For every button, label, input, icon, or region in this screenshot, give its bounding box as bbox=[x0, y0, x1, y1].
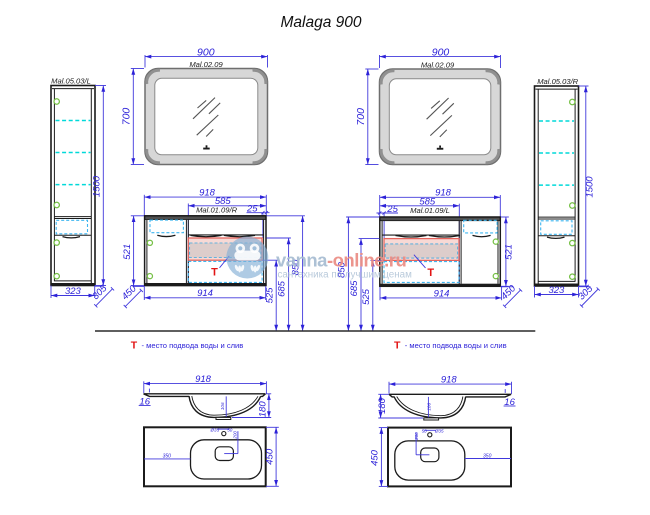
svg-text:16: 16 bbox=[139, 396, 150, 407]
svg-text:1500: 1500 bbox=[91, 175, 102, 197]
svg-text:350: 350 bbox=[483, 453, 492, 459]
svg-text:Mal.02.09: Mal.02.09 bbox=[189, 60, 223, 69]
svg-text:525: 525 bbox=[264, 287, 275, 304]
svg-text:Mal.01.09/R: Mal.01.09/R bbox=[196, 205, 237, 214]
svg-text:918: 918 bbox=[199, 187, 216, 198]
svg-text:- место подвода воды и слив: - место подвода воды и слив bbox=[405, 341, 507, 350]
svg-text:Mal.05.03/R: Mal.05.03/R bbox=[537, 77, 578, 86]
svg-text:900: 900 bbox=[432, 47, 450, 59]
svg-text:450: 450 bbox=[264, 448, 275, 465]
svg-text:521: 521 bbox=[503, 244, 514, 260]
svg-text:450: 450 bbox=[499, 283, 518, 302]
svg-text:525: 525 bbox=[361, 288, 372, 305]
svg-text:918: 918 bbox=[435, 188, 452, 199]
svg-text:25: 25 bbox=[386, 204, 398, 215]
svg-text:Ø35: Ø35 bbox=[434, 429, 444, 434]
svg-text:сантехника по лучшим ценам: сантехника по лучшим ценам bbox=[278, 270, 413, 281]
svg-text:16: 16 bbox=[504, 397, 515, 408]
svg-text:180: 180 bbox=[377, 397, 388, 414]
svg-text:914: 914 bbox=[434, 288, 450, 299]
svg-text:914: 914 bbox=[197, 288, 213, 299]
svg-text:685: 685 bbox=[277, 280, 288, 297]
svg-text:106: 106 bbox=[220, 402, 225, 410]
svg-text:50: 50 bbox=[422, 429, 428, 434]
svg-text:918: 918 bbox=[441, 374, 458, 385]
svg-text:323: 323 bbox=[65, 286, 82, 297]
svg-text:450: 450 bbox=[370, 449, 381, 466]
svg-text:25: 25 bbox=[246, 204, 258, 215]
svg-text:918: 918 bbox=[195, 374, 212, 385]
svg-text:106: 106 bbox=[427, 403, 432, 411]
svg-text:350: 350 bbox=[163, 454, 172, 460]
svg-text:T: T bbox=[211, 267, 218, 279]
svg-text:521: 521 bbox=[122, 244, 133, 260]
svg-text:T: T bbox=[394, 340, 401, 352]
svg-text:Malaga 900: Malaga 900 bbox=[280, 14, 361, 31]
svg-text:685: 685 bbox=[349, 280, 360, 297]
svg-text:vanna-online.ru: vanna-online.ru bbox=[276, 250, 406, 271]
svg-text:Mal.01.09/L: Mal.01.09/L bbox=[410, 206, 450, 215]
svg-text:200: 200 bbox=[232, 431, 237, 440]
svg-text:200: 200 bbox=[414, 432, 419, 441]
svg-text:T: T bbox=[427, 267, 434, 279]
svg-text:700: 700 bbox=[121, 108, 133, 126]
svg-text:700: 700 bbox=[355, 108, 367, 126]
svg-text:- место подвода воды и слив: - место подвода воды и слив bbox=[142, 341, 244, 350]
svg-text:1500: 1500 bbox=[584, 176, 595, 198]
svg-text:Ø35: Ø35 bbox=[209, 427, 219, 432]
svg-text:T: T bbox=[131, 339, 138, 351]
svg-text:900: 900 bbox=[197, 47, 215, 59]
svg-text:Mal.05.03/L: Mal.05.03/L bbox=[51, 77, 91, 86]
svg-text:Mal.02.09: Mal.02.09 bbox=[421, 60, 455, 69]
svg-text:180: 180 bbox=[258, 401, 269, 418]
svg-text:323: 323 bbox=[548, 285, 565, 296]
